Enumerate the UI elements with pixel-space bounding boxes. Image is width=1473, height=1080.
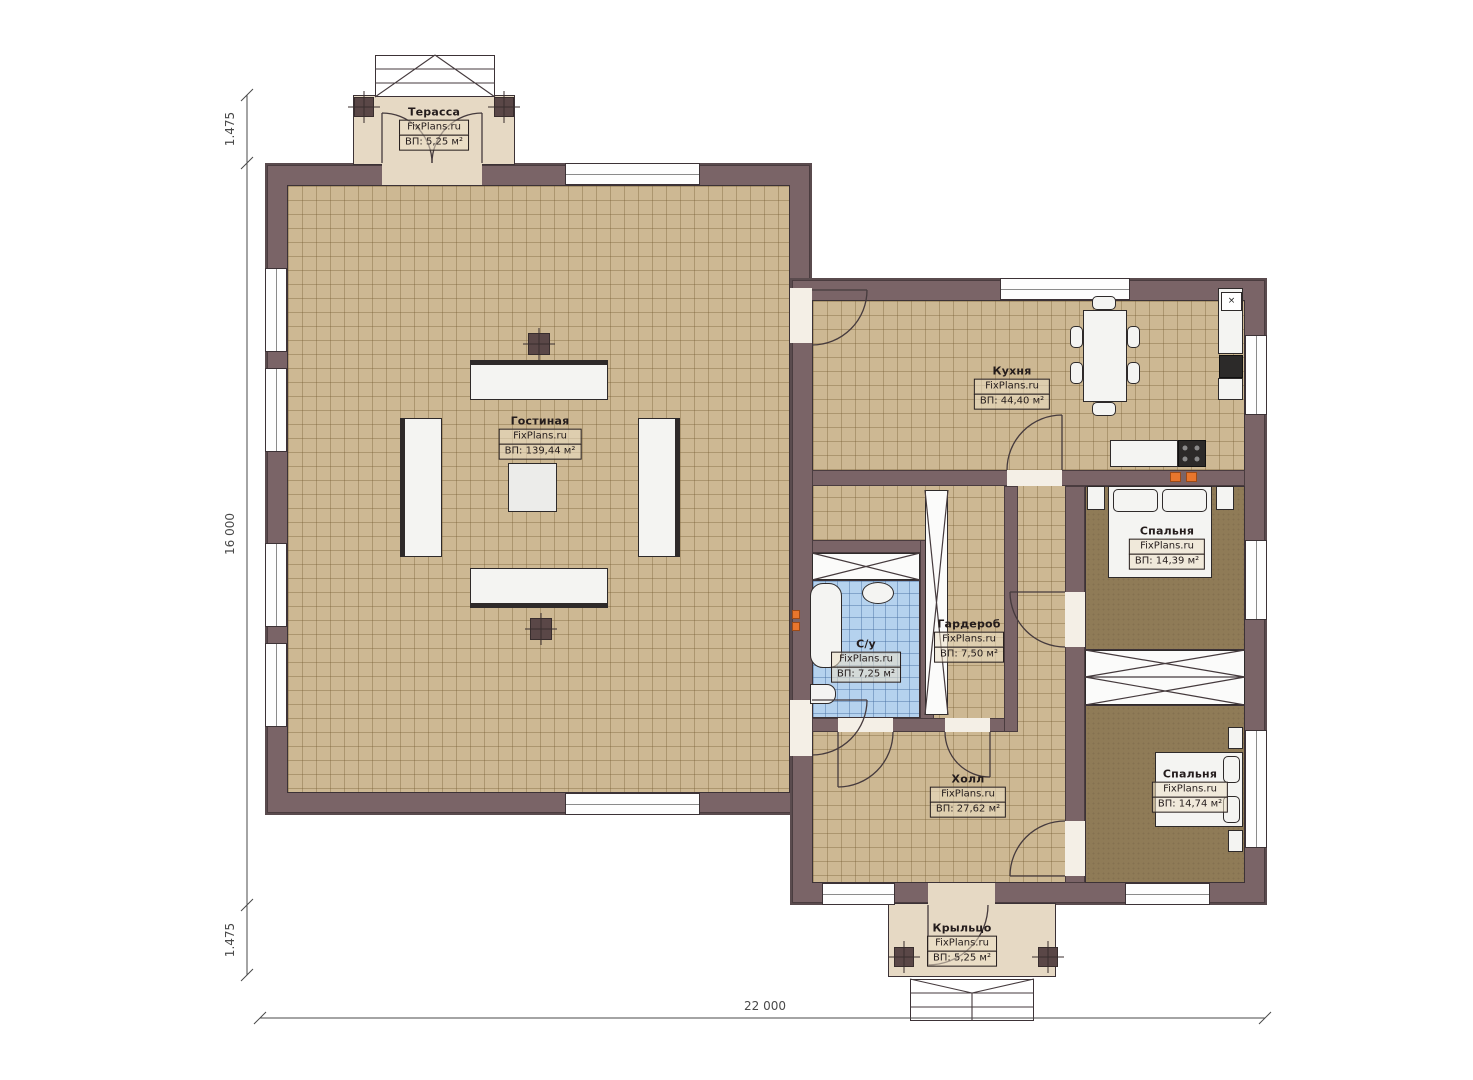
room-name: Спальня [1129,525,1205,538]
room-area: ВП: 5,25 м² [927,950,997,966]
room-name: Холл [930,773,1006,786]
terrace-stairs [375,55,495,97]
window-bedroom1-east [1245,540,1267,620]
door-gap-bedroom2 [1065,821,1085,876]
dimension-left-bottom: 1.475 [223,910,237,970]
stove-icon [1178,440,1206,467]
kitchen-counter-south [1110,440,1178,467]
window-bedroom2-east [1245,730,1267,848]
column-terrace-left [354,97,374,117]
radiator-marker [792,610,800,619]
room-area: ВП: 14,74 м² [1152,796,1228,812]
column-porch-left [894,947,914,967]
door-gap-bedroom1 [1065,592,1085,647]
door-gap-kitchen-hall [1007,470,1062,486]
kitchen-sink-icon: × [1221,292,1242,311]
dimension-bottom: 22 000 [720,999,810,1013]
bathroom-sink-icon [862,582,894,604]
column-living-bottom [530,618,552,640]
door-gap-entry [928,883,995,905]
radiator-marker [1170,472,1181,482]
nightstand [1228,727,1243,749]
wardrobe-cabinet [925,490,948,715]
sofa-bottom [470,568,608,608]
room-label-porch: Крыльцо FixPlans.ru ВП: 5,25 м² [927,922,997,967]
coffee-table [508,463,557,512]
room-name: Гардероб [934,618,1004,631]
floor-plan-canvas: × [0,0,1473,1080]
room-name: Кухня [974,365,1050,378]
room-label-bedroom2: Спальня FixPlans.ru ВП: 14,74 м² [1152,768,1228,813]
pillow [1162,489,1207,512]
sofa-top [470,360,608,400]
room-area: ВП: 5,25 м² [399,134,469,150]
kitchen-cabinet [1218,378,1243,400]
room-area: ВП: 7,50 м² [934,646,1004,662]
dining-chair [1070,326,1083,348]
dining-chair [1092,296,1116,310]
watermark: FixPlans.ru [934,632,1004,648]
toilet-icon [810,684,836,704]
dining-chair [1092,402,1116,416]
wall-bathroom-top [812,540,934,553]
watermark: FixPlans.ru [1152,782,1228,798]
door-gap-kitchen-living [790,288,812,343]
bathroom-closet [812,553,920,580]
radiator-marker [792,622,800,631]
room-area: ВП: 139,44 м² [499,443,582,459]
column-terrace-right [494,97,514,117]
pillow [1113,489,1158,512]
room-label-terrace: Терасса FixPlans.ru ВП: 5,25 м² [399,106,469,151]
watermark: FixPlans.ru [1129,539,1205,555]
watermark: FixPlans.ru [399,120,469,136]
sofa-right [638,418,680,557]
window-hall-south [822,883,895,905]
radiator-marker [1186,472,1197,482]
sofa-left [400,418,442,557]
porch-stairs [910,979,1034,1021]
watermark: FixPlans.ru [974,379,1050,395]
room-name: Крыльцо [927,922,997,935]
room-name: С/у [831,638,901,651]
bedroom-closets [1085,650,1245,705]
dimension-left-middle: 16 000 [223,504,237,564]
wall-wardrobe-right [1004,486,1018,732]
dining-chair [1127,362,1140,384]
window-bedroom2-south [1125,883,1210,905]
column-porch-right [1038,947,1058,967]
nightstand [1087,486,1105,510]
nightstand [1216,486,1234,510]
room-label-bathroom: С/у FixPlans.ru ВП: 7,25 м² [831,638,901,683]
nightstand [1228,830,1243,852]
watermark: FixPlans.ru [927,936,997,952]
fridge-icon [1219,355,1243,378]
window-living-north [565,163,700,185]
window-living-south [565,793,700,815]
room-area: ВП: 44,40 м² [974,393,1050,409]
window-living-west-1 [265,268,287,352]
room-label-wardrobe: Гардероб FixPlans.ru ВП: 7,50 м² [934,618,1004,663]
room-label-hall: Холл FixPlans.ru ВП: 27,62 м² [930,773,1006,818]
room-area: ВП: 14,39 м² [1129,553,1205,569]
room-name: Терасса [399,106,469,119]
dimension-left-top: 1.475 [223,99,237,159]
window-kitchen-east [1245,335,1267,415]
watermark: FixPlans.ru [930,787,1006,803]
dining-table [1083,310,1127,402]
room-name: Спальня [1152,768,1228,781]
door-gap-bathroom [838,718,893,732]
column-living-top [528,333,550,355]
room-name: Гостиная [499,415,582,428]
dining-chair [1070,362,1083,384]
dining-chair [1127,326,1140,348]
room-area: ВП: 27,62 м² [930,801,1006,817]
window-living-west-3 [265,543,287,627]
window-living-west-4 [265,643,287,727]
watermark: FixPlans.ru [499,429,582,445]
window-living-west-2 [265,368,287,452]
door-gap-terrace [382,163,482,185]
door-gap-hall-living [790,700,812,756]
room-label-bedroom1: Спальня FixPlans.ru ВП: 14,39 м² [1129,525,1205,570]
room-area: ВП: 7,25 м² [831,666,901,682]
door-gap-wardrobe [945,718,990,732]
room-label-living: Гостиная FixPlans.ru ВП: 139,44 м² [499,415,582,460]
room-label-kitchen: Кухня FixPlans.ru ВП: 44,40 м² [974,365,1050,410]
watermark: FixPlans.ru [831,652,901,668]
